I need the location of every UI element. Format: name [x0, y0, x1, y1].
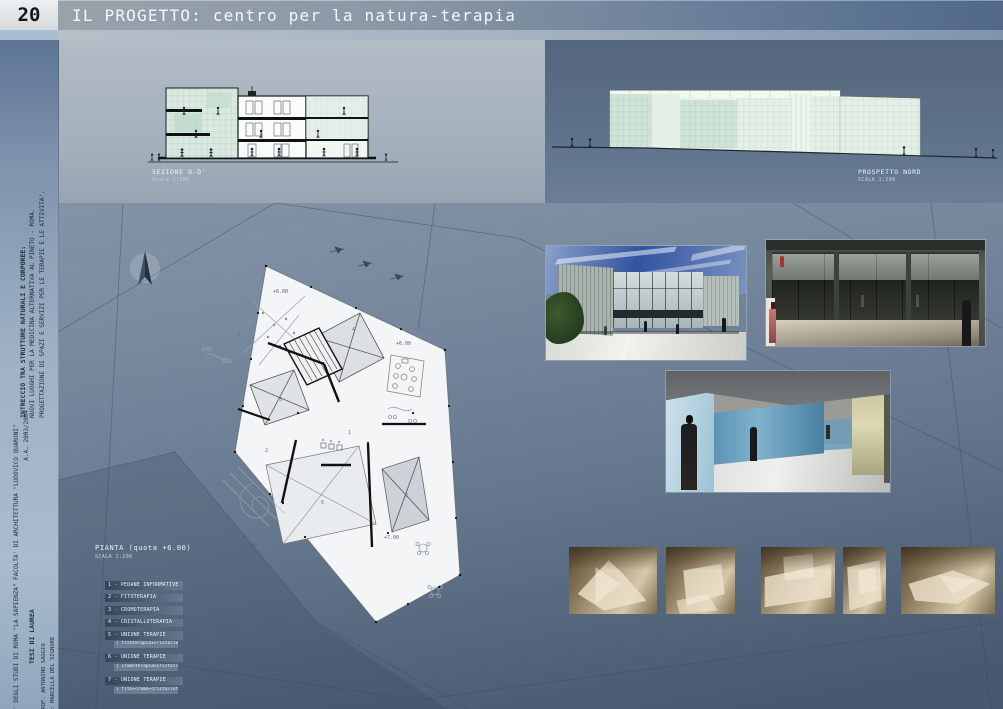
legend-item: 2 - FITOTERAPIA [105, 594, 205, 603]
sidebar-thesis-block: TESI DI LAUREA [27, 622, 37, 664]
zone-number: 5 [279, 397, 282, 403]
render-figure-far [826, 425, 830, 439]
zone-number: 1 [348, 430, 351, 436]
section-label-block: SEZIONE D-D' Scala 1:200 [152, 168, 206, 183]
legend-label: 4 - CRISTALLOTERAPIA [105, 619, 183, 628]
legend-item: 4 - CRISTALLOTERAPIA [105, 619, 205, 628]
render-floor [772, 320, 979, 346]
advisor-line: RELATORE: PROF. ANTONINO SAGGIO [40, 596, 49, 709]
plan-legend: 1 - PEDANE INFORMATIVE 2 - FITOTERAPIA 3… [105, 581, 205, 700]
section-title: SEZIONE D-D' [152, 168, 206, 177]
academic-year: A.A. 2003/2004 [22, 410, 32, 709]
render-figure-woman [768, 302, 777, 346]
legend-item: 7 - UNIONE TERAPIE ( fito+cromo+cristall… [105, 677, 205, 694]
render-figure [644, 321, 647, 332]
elevation-building [610, 90, 920, 156]
legend-sublabel: ( fitoterapia+cristalloterapia ) [114, 641, 178, 648]
legend-label: 7 - UNIONE TERAPIE [105, 677, 183, 686]
render-opening [772, 280, 979, 320]
section-scale: Scala 1:200 [152, 177, 206, 183]
header-strip [58, 30, 1003, 40]
project-title: INTRECCIO TRA STRUTTURE NATURALI E CORPO… [18, 106, 28, 418]
legend-label: 2 - FITOTERAPIA [105, 594, 183, 603]
zone-number: 3 [237, 332, 240, 338]
photo-shadow [901, 547, 995, 570]
zone-number: 2 [265, 448, 268, 454]
legend-sublabel: ( cromoterapia+cristalloterapia ) [114, 664, 178, 671]
elevation-scale: SCALA 1:200 [858, 177, 921, 183]
photo-shadow [843, 547, 886, 570]
photo-shadow [761, 547, 835, 570]
level-mark: +7.00 [384, 535, 399, 541]
render-figure [604, 326, 607, 335]
model-photo-3 [761, 547, 835, 614]
model-photo-4 [843, 547, 886, 614]
plan-scale: SCALA 1:200 [95, 554, 191, 560]
sidebar-university-block: UNIVERSITA' DEGLI STUDI DI ROMA "LA SAPI… [12, 410, 31, 709]
render-figure-dark [962, 300, 971, 346]
render-edge [884, 383, 890, 483]
render-figure-faint [916, 295, 919, 307]
page-title: IL PROGETTO: centro per la natura-terapi… [58, 6, 516, 25]
section-left-tower [166, 88, 238, 158]
sidebar: INTRECCIO TRA STRUTTURE NATURALI E CORPO… [0, 40, 59, 709]
project-subtitle-2: PROGETTAZIONE DI SPAZI E SERVIZI PER LE … [38, 106, 48, 418]
model-photo-2 [666, 547, 735, 614]
render-figure-close [680, 415, 698, 492]
render-courtyard [766, 240, 985, 346]
plan-title: PIANTA (quota +6.00) [95, 544, 191, 554]
render-figure [722, 318, 726, 332]
page-number: 20 [18, 4, 41, 26]
figure-body [769, 309, 776, 343]
zone-number: 6 [321, 500, 324, 506]
legend-sublabel: ( fito+cromo+cristalloterapia ) [114, 687, 178, 694]
project-subtitle-1: NUOVI LUOGHI PER LA MEDICINA ALTERNATIVA… [28, 106, 38, 418]
render-exterior [546, 246, 746, 360]
legend-label: 5 - UNIONE TERAPIE [105, 631, 183, 640]
level-mark: +7.00 [242, 543, 257, 549]
render-figure-faint [861, 295, 864, 307]
legend-label: 6 - UNIONE TERAPIE [105, 654, 183, 663]
render-glass-line [613, 288, 703, 289]
level-mark: +6.00 [273, 289, 288, 295]
zone-number: 7 [405, 493, 408, 499]
legend-label: 3 - CROMOTERAPIA [105, 606, 183, 615]
page-number-box: 20 [0, 0, 58, 30]
figure-body [681, 424, 697, 490]
render-figure-walking [750, 427, 757, 461]
plan-spiral [240, 483, 269, 518]
render-yellow-wall [852, 391, 884, 475]
thesis-label: TESI DI LAUREA [27, 622, 37, 664]
render-glass-facade [613, 272, 703, 328]
figure-head [686, 415, 693, 424]
sidebar-project-block: INTRECCIO TRA STRUTTURE NATURALI E CORPO… [18, 106, 48, 418]
legend-item: 6 - UNIONE TERAPIE ( cromoterapia+crista… [105, 654, 205, 671]
legend-item: 5 - UNIONE TERAPIE ( fitoterapia+cristal… [105, 631, 205, 648]
title-bar: IL PROGETTO: centro per la natura-terapi… [58, 0, 1003, 30]
legend-item: 3 - CROMOTERAPIA [105, 606, 205, 615]
level-mark: +6.00 [396, 341, 411, 347]
render-base-shadow [558, 331, 739, 334]
header-strip-left [0, 30, 58, 40]
render-figure [676, 324, 679, 334]
survey-marker-icons [330, 247, 404, 280]
photo-shadow [569, 547, 657, 570]
sidebar-people-block: RELATORE: PROF. ANTONINO SAGGIO STUDENTE… [40, 596, 58, 709]
university-line: UNIVERSITA' DEGLI STUDI DI ROMA "LA SAPI… [12, 410, 22, 709]
student-line: STUDENTESSA: MARCELLA DEL SIGNORE [49, 596, 58, 709]
plan-label-block: PIANTA (quota +6.00) SCALA 1:200 [95, 544, 191, 560]
elevation-title: PROSPETTO NORD [858, 168, 921, 177]
render-balcony-band [772, 252, 979, 280]
elevation-label-block: PROSPETTO NORD SCALA 1:200 [858, 168, 921, 183]
presentation-board: 20 IL PROGETTO: centro per la natura-ter… [0, 0, 1003, 709]
figure-head [771, 302, 775, 309]
north-arrow-icon [130, 251, 160, 285]
model-photo-5 [901, 547, 995, 614]
section-right-block [306, 96, 368, 158]
elevation-drawing [552, 70, 997, 165]
model-photo-1 [569, 547, 657, 614]
render-right-wall [703, 276, 739, 326]
section-drawing [148, 84, 398, 166]
photo-shadow [666, 547, 735, 570]
render-interior [666, 371, 890, 492]
section-mid-block [238, 86, 306, 158]
zone-number: 4 [352, 327, 355, 333]
render-roof-edge [766, 240, 985, 250]
legend-label: 1 - PEDANE INFORMATIVE [105, 581, 183, 590]
legend-item: 1 - PEDANE INFORMATIVE [105, 581, 205, 590]
render-figure-red [780, 256, 784, 267]
